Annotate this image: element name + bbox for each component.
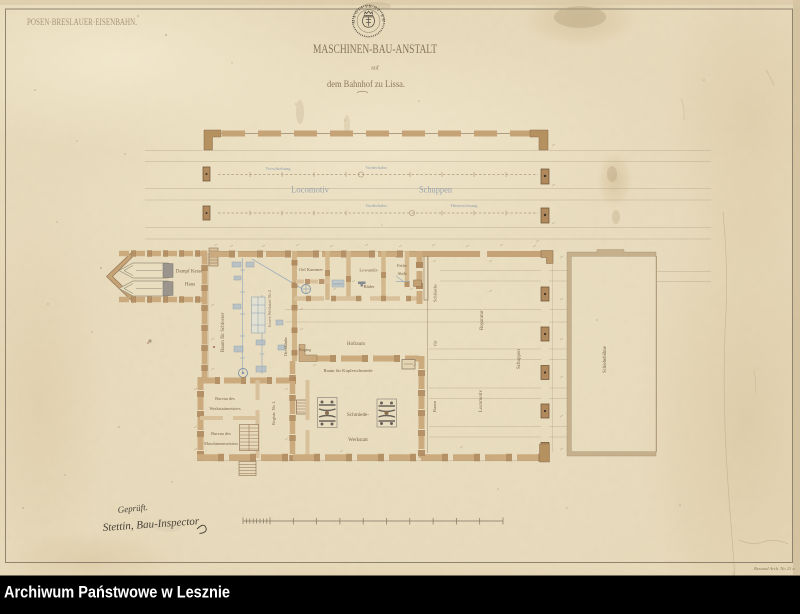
svg-text:Schiebebühne: Schiebebühne bbox=[603, 346, 608, 373]
svg-text:Bestand Arch. No 23 a: Bestand Arch. No 23 a bbox=[754, 566, 795, 571]
svg-text:Reparatur: Reparatur bbox=[480, 310, 485, 330]
svg-text:Locomotiv: Locomotiv bbox=[291, 186, 329, 196]
svg-text:Schmiede-: Schmiede- bbox=[347, 412, 369, 418]
svg-text:Feiler: Feiler bbox=[397, 263, 407, 268]
svg-text:Hofraum: Hofraum bbox=[347, 342, 365, 347]
svg-text:für: für bbox=[433, 340, 438, 346]
svg-text:Lowandir-: Lowandir- bbox=[359, 268, 379, 273]
svg-text:Raum für Schlosser: Raum für Schlosser bbox=[221, 312, 226, 352]
svg-text:Werkstattmeisters: Werkstattmeisters bbox=[209, 406, 241, 411]
svg-text:Raum für Kupferschmiede: Raum für Kupferschmiede bbox=[324, 368, 373, 373]
svg-text:Registr. No 1.: Registr. No 1. bbox=[271, 401, 276, 425]
svg-text:Maschinenmeisters: Maschinenmeisters bbox=[204, 441, 238, 446]
svg-text:Dampf Kessel: Dampf Kessel bbox=[176, 270, 205, 275]
svg-text:Raum: Raum bbox=[432, 401, 437, 412]
svg-text:Archiwum Państwowe w Lesznie: Archiwum Państwowe w Lesznie bbox=[4, 583, 230, 602]
svg-text:MASCHINEN-BAU-ANSTALT: MASCHINEN-BAU-ANSTALT bbox=[313, 42, 437, 56]
svg-text:Bäder: Bäder bbox=[364, 284, 375, 289]
svg-text:Werkstatt: Werkstatt bbox=[348, 437, 368, 443]
svg-text:Bureau des: Bureau des bbox=[211, 431, 231, 436]
svg-text:Vorderbahn: Vorderbahn bbox=[365, 165, 387, 170]
svg-text:Haus: Haus bbox=[185, 283, 195, 288]
svg-text:Abtle: Abtle bbox=[397, 271, 406, 276]
svg-text:Eingang: Eingang bbox=[299, 348, 311, 352]
svg-text:dem Bahnhof zu Lissa.: dem Bahnhof zu Lissa. bbox=[327, 79, 405, 89]
svg-text:Locomotiv: Locomotiv bbox=[479, 390, 484, 412]
svg-text:POSEN·BRESLAUER·EISENBAHN.: POSEN·BRESLAUER·EISENBAHN. bbox=[27, 17, 137, 27]
svg-text:Oel Kammer: Oel Kammer bbox=[299, 267, 323, 272]
svg-text:Schuppen: Schuppen bbox=[517, 349, 522, 369]
svg-text:Schläuche: Schläuche bbox=[433, 284, 438, 302]
svg-text:auf: auf bbox=[371, 65, 379, 72]
svg-text:Innere Werkstatt No 2: Innere Werkstatt No 2 bbox=[267, 290, 272, 327]
svg-text:Vorderbahn: Vorderbahn bbox=[365, 203, 387, 208]
svg-text:Vorschiebung: Vorschiebung bbox=[265, 166, 291, 171]
svg-text:Bureau des: Bureau des bbox=[215, 396, 235, 401]
svg-text:Schuppen: Schuppen bbox=[419, 186, 452, 196]
svg-text:Drehbänke: Drehbänke bbox=[283, 337, 288, 356]
svg-text:Hinterachsung: Hinterachsung bbox=[451, 203, 478, 208]
